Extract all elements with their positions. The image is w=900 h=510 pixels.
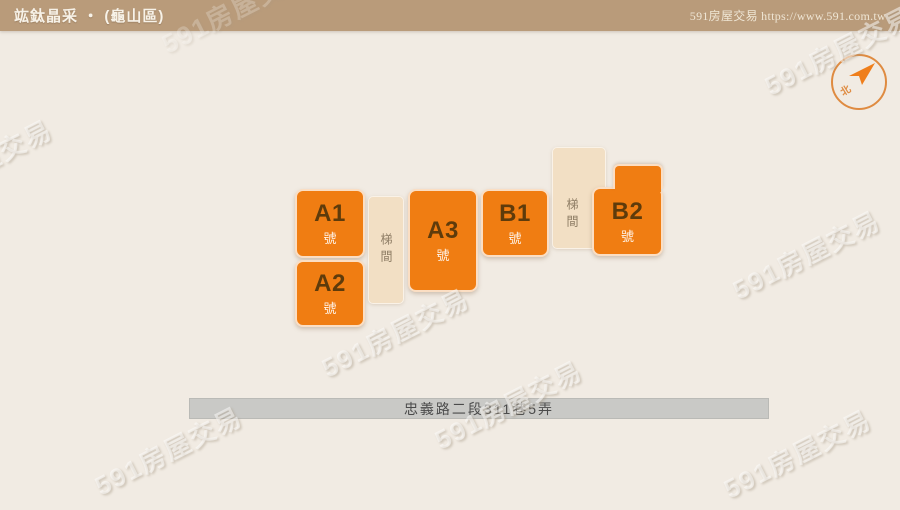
unit-b2-notch [613, 164, 663, 189]
unit-b2-body: B2 號 [592, 187, 663, 256]
site-plan-screen: 竑鈦晶采 ‧ (龜山區) 591房屋交易 https://www.591.com… [0, 0, 900, 510]
unit-name: A3 [427, 219, 459, 243]
unit-block-a3[interactable]: A3 號 [408, 189, 478, 292]
unit-suffix: 號 [508, 232, 521, 245]
unit-name: A2 [314, 272, 346, 296]
floor-plan-canvas: 忠義路二段311巷5弄 梯間 梯間 A1 號 A2 號 A3 號 B1 號 [0, 31, 900, 510]
unit-suffix: 號 [436, 249, 449, 262]
road-bar: 忠義路二段311巷5弄 [189, 398, 769, 419]
unit-suffix: 號 [323, 232, 336, 245]
unit-name: B2 [612, 200, 644, 224]
unit-block-a1[interactable]: A1 號 [295, 189, 365, 258]
road-label: 忠義路二段311巷5弄 [404, 399, 554, 419]
unit-name: B1 [499, 202, 531, 226]
unit-name: A1 [314, 202, 346, 226]
north-arrow-icon [849, 63, 875, 85]
unit-block-a2[interactable]: A2 號 [295, 260, 365, 327]
stairwell-block-1: 梯間 [368, 196, 404, 304]
compass: 北 [831, 54, 887, 110]
stairwell-label: 梯間 [566, 198, 578, 232]
header: 竑鈦晶采 ‧ (龜山區) 591房屋交易 https://www.591.com… [0, 0, 900, 31]
unit-suffix: 號 [621, 230, 634, 243]
unit-suffix: 號 [323, 302, 336, 315]
page-title: 竑鈦晶采 ‧ (龜山區) [14, 5, 164, 26]
unit-block-b1[interactable]: B1 號 [481, 189, 549, 257]
stairwell-label: 梯間 [380, 233, 392, 267]
unit-block-b2[interactable]: B2 號 [592, 164, 663, 256]
site-watermark-label: 591房屋交易 https://www.591.com.tw [690, 7, 886, 24]
